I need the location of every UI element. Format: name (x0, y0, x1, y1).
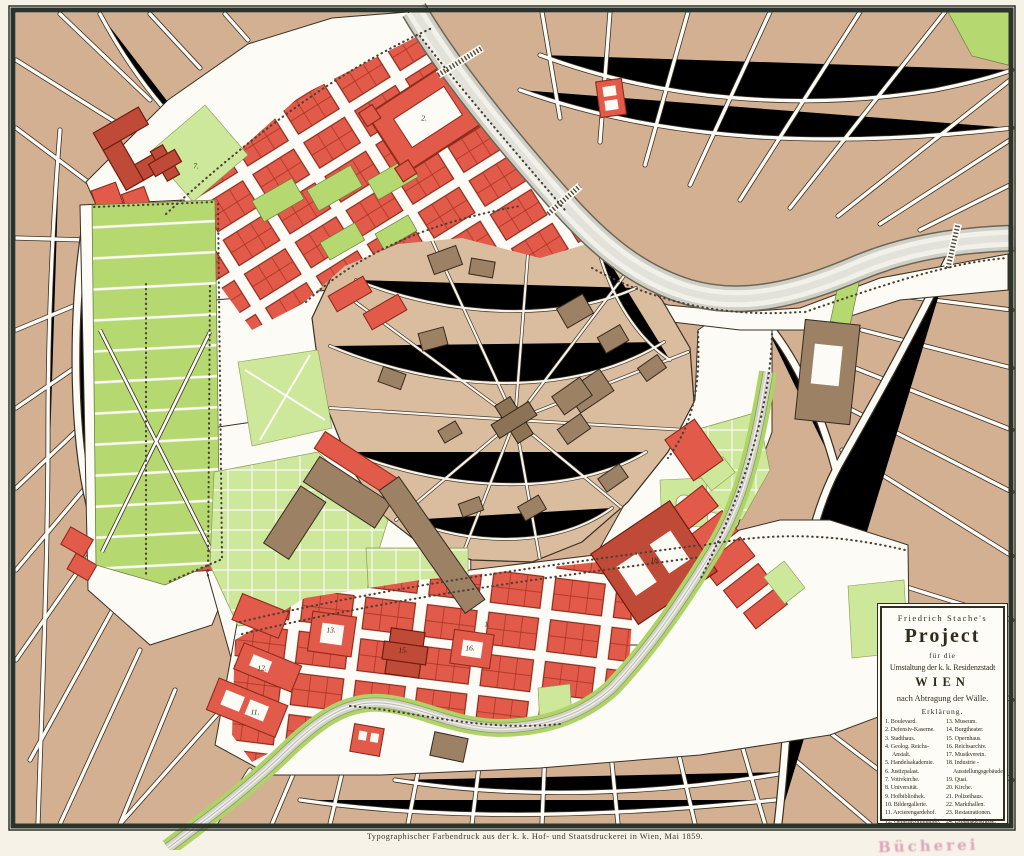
legend-item: 16. Reichsarchiv. (946, 743, 1000, 751)
legend-item: 7. Votivkirche. (885, 776, 946, 784)
legend-item: 12. Generalcommando. (885, 818, 946, 826)
legend-item: 19. Quai. (946, 776, 1000, 784)
legend-item: 11. Arcierengardehof. (885, 809, 946, 817)
legend-item: 1. Boulevard. (885, 718, 946, 726)
legend-item: 4. Geolog. Reichs-Anstalt. (885, 743, 946, 760)
legend-item: 21. Polizeihaus. (946, 793, 1000, 801)
legend-item: 13. Museum. (946, 718, 1000, 726)
author-line: Friedrich Stache's (885, 613, 1000, 623)
legend-item: 23. Restaurationen. (946, 809, 1000, 817)
legend: 1. Boulevard.2. Defensiv-Kaserne.3. Stad… (885, 718, 1000, 826)
legend-item: 3. Stadthaus. (885, 735, 946, 743)
legend-item: 24. Esplanadestrasse. (946, 818, 1000, 826)
library-stamp: Bücherei (878, 836, 979, 856)
legend-item: 6. Justizpalast. (885, 768, 946, 776)
city-name: WIEN (885, 675, 1000, 690)
legend-item: 14. Burgtheater. (946, 726, 1000, 734)
legend-column-right: 13. Museum.14. Burgtheater.15. Opernhaus… (946, 718, 1000, 826)
legend-item: 22. Markthallen. (946, 801, 1000, 809)
legend-column-left: 1. Boulevard.2. Defensiv-Kaserne.3. Stad… (885, 718, 946, 826)
east-gray-building (795, 319, 860, 424)
subtitle-2: Umstaltung der k. k. Residenzstadt (885, 663, 1000, 672)
subtitle-1: für die (885, 651, 1000, 660)
legend-item: 18. Industrie - Ausstellungsgebäude. (946, 759, 1000, 776)
legend-item: 20. Kirche. (946, 784, 1000, 792)
map-page: { "map": { "cartouche": { "author_line":… (0, 0, 1024, 850)
legend-item: 2. Defensiv-Kaserne. (885, 726, 946, 734)
legend-item: 15. Opernhaus. (946, 735, 1000, 743)
legend-heading: Erklärung. (885, 707, 1000, 716)
title-cartouche: Friedrich Stache's Project für die Umsta… (877, 603, 1008, 824)
legend-item: 17. Musikverein. (946, 751, 1000, 759)
imprint-caption: Typographischer Farbendruck aus der k. k… (230, 832, 840, 841)
vienna-historical-map (0, 0, 1024, 850)
legend-item: 10. Bildergallerie. (885, 801, 946, 809)
subtitle-3: nach Abtragung der Wälle. (885, 693, 1000, 703)
map-title: Project (885, 625, 1000, 648)
leopoldstadt-kaserne (596, 78, 627, 117)
legend-item: 5. Handelsakademie. (885, 759, 946, 767)
legend-item: 8. Universität. (885, 784, 946, 792)
legend-item: 9. Hofbibliothek. (885, 793, 946, 801)
